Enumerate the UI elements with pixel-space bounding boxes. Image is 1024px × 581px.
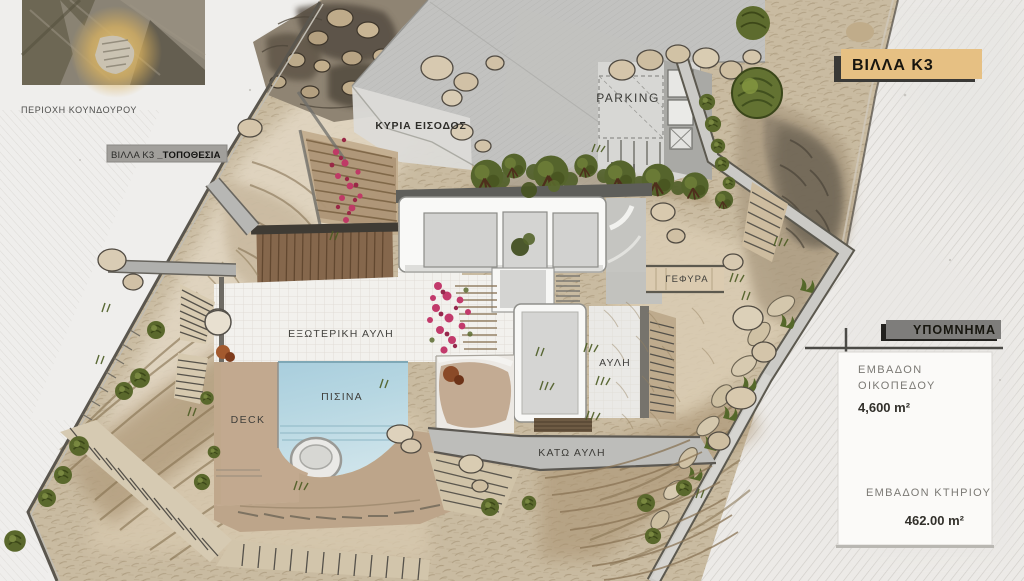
- svg-text:PARKING: PARKING: [596, 91, 660, 105]
- svg-text:ΥΠΟΜΝΗΜΑ: ΥΠΟΜΝΗΜΑ: [913, 323, 996, 337]
- svg-text:462.00 m²: 462.00 m²: [905, 513, 965, 528]
- svg-text:ΕΜΒΑΔΟΝ ΚΤΗΡΙΟΥ: ΕΜΒΑΔΟΝ ΚΤΗΡΙΟΥ: [866, 487, 991, 499]
- svg-text:DECK: DECK: [231, 414, 266, 426]
- svg-text:ΟΙΚΟΠΕΔΟΥ: ΟΙΚΟΠΕΔΟΥ: [858, 380, 936, 392]
- svg-text:4,600 m²: 4,600 m²: [858, 400, 911, 415]
- svg-text:ΕΜΒΑΔΟΝ: ΕΜΒΑΔΟΝ: [858, 364, 923, 376]
- svg-text:ΚΑΤΩ ΑΥΛΗ: ΚΑΤΩ ΑΥΛΗ: [538, 447, 605, 459]
- svg-text:ΓΕΦΥΡΑ: ΓΕΦΥΡΑ: [665, 274, 708, 285]
- svg-text:ΒΙΛΛΑ Κ3: ΒΙΛΛΑ Κ3: [852, 57, 934, 74]
- svg-text:ΚΥΡΙΑ ΕΙΣΟΔΟΣ: ΚΥΡΙΑ ΕΙΣΟΔΟΣ: [375, 120, 466, 132]
- svg-text:ΒΙΛΛΑ Κ3 _ΤΟΠΟΘΕΣΙΑ: ΒΙΛΛΑ Κ3 _ΤΟΠΟΘΕΣΙΑ: [111, 150, 221, 161]
- svg-text:ΠΕΡΙΟΧΗ ΚΟΥΝΔΟΥΡΟΥ: ΠΕΡΙΟΧΗ ΚΟΥΝΔΟΥΡΟΥ: [21, 105, 137, 115]
- svg-text:ΕΞΩΤΕΡΙΚΗ ΑΥΛΗ: ΕΞΩΤΕΡΙΚΗ ΑΥΛΗ: [288, 328, 394, 340]
- svg-text:ΑΥΛΗ: ΑΥΛΗ: [599, 357, 631, 369]
- svg-text:ΠΙΣΙΝΑ: ΠΙΣΙΝΑ: [321, 391, 363, 403]
